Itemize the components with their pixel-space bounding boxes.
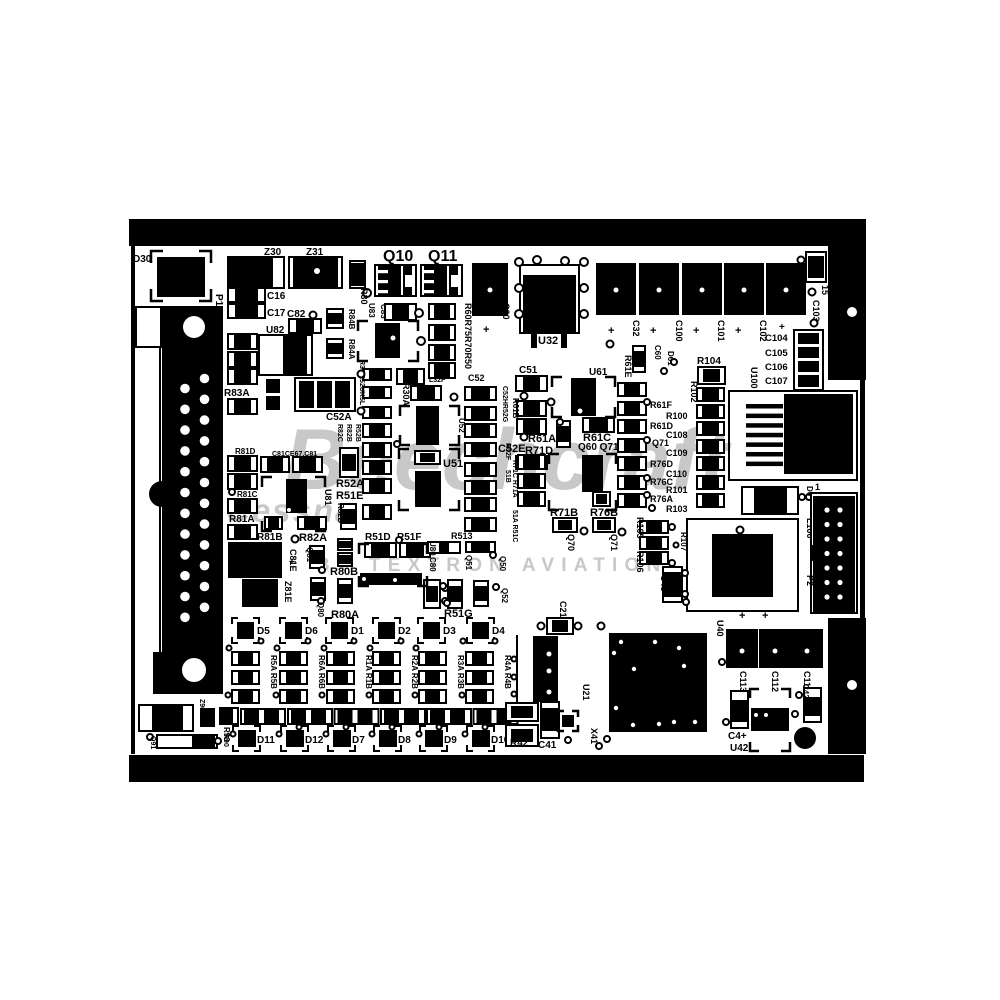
svg-text:R82A: R82A	[299, 532, 327, 544]
svg-text:R103: R103	[666, 504, 688, 514]
svg-text:Q50: Q50	[498, 556, 507, 572]
svg-text:U61: U61	[589, 367, 608, 378]
svg-text:R105: R105	[635, 517, 645, 539]
svg-text:R81D: R81D	[235, 447, 256, 456]
svg-text:R83A: R83A	[224, 388, 250, 399]
svg-text:+: +	[650, 325, 656, 337]
svg-text:R52A: R52A	[336, 478, 364, 490]
svg-text:C4+: C4+	[728, 731, 747, 742]
svg-text:R80A: R80A	[331, 609, 359, 621]
svg-text:51A R51C: 51A R51C	[511, 510, 518, 542]
svg-text:R80B: R80B	[330, 566, 358, 578]
svg-text:R81B: R81B	[257, 532, 283, 543]
svg-text:Q80: Q80	[316, 602, 325, 618]
svg-text:D2: D2	[398, 626, 411, 637]
svg-text:C80: C80	[428, 557, 437, 572]
svg-text:R84A: R84A	[347, 339, 356, 360]
svg-text:15: 15	[820, 285, 830, 295]
svg-text:U42: U42	[730, 743, 749, 754]
svg-text:+: +	[289, 557, 295, 568]
svg-text:+: +	[693, 325, 699, 337]
svg-text:U82: U82	[266, 325, 285, 336]
svg-text:C52E: C52E	[498, 443, 526, 455]
svg-text:Q10: Q10	[383, 248, 413, 265]
svg-text:R81A: R81A	[229, 514, 255, 525]
svg-text:C106: C106	[765, 362, 788, 373]
svg-text:Q60 Q71: Q60 Q71	[578, 442, 619, 453]
svg-text:Q51: Q51	[464, 555, 473, 571]
svg-text:X41: X41	[589, 728, 599, 744]
svg-text:R1A R1B: R1A R1B	[364, 655, 373, 689]
svg-text:+: +	[735, 325, 741, 337]
svg-text:Z31: Z31	[306, 247, 324, 258]
svg-text:D6: D6	[305, 626, 318, 637]
svg-text:+: +	[739, 610, 745, 622]
svg-text:Z81E: Z81E	[283, 581, 293, 603]
svg-text:R3A R3B: R3A R3B	[456, 655, 465, 689]
svg-text:C52A: C52A	[326, 412, 352, 423]
svg-text:D3: D3	[443, 626, 456, 637]
svg-text:C32: C32	[631, 320, 641, 337]
svg-text:R61F: R61F	[650, 400, 673, 410]
svg-text:R104: R104	[697, 356, 721, 367]
svg-text:C113: C113	[738, 671, 748, 692]
svg-text:C82: C82	[287, 309, 306, 320]
svg-text:Z30: Z30	[264, 247, 282, 258]
svg-text:Q70: Q70	[566, 534, 576, 551]
svg-text:C107: C107	[765, 376, 788, 387]
svg-text:U51: U51	[443, 458, 463, 470]
svg-text:C17: C17	[267, 308, 286, 319]
svg-text:U100: U100	[749, 367, 759, 389]
svg-text:D4: D4	[492, 626, 505, 637]
svg-text:1: 1	[815, 482, 820, 492]
svg-text:D5: D5	[257, 626, 270, 637]
svg-text:R82C: R82C	[336, 424, 343, 442]
svg-text:R61E: R61E	[623, 355, 633, 378]
svg-text:C109: C109	[666, 448, 688, 458]
svg-text:Q71: Q71	[652, 438, 669, 448]
svg-text:R106: R106	[635, 551, 645, 573]
svg-text:D1: D1	[351, 626, 364, 637]
svg-text:Q71: Q71	[609, 534, 619, 551]
svg-text:Q81: Q81	[305, 547, 314, 563]
svg-text:C30: C30	[501, 303, 511, 320]
svg-text:U80: U80	[428, 541, 437, 556]
svg-text:C105: C105	[765, 348, 788, 359]
svg-text:R51D: R51D	[365, 532, 391, 543]
svg-text:R6A R6B: R6A R6B	[317, 655, 326, 689]
svg-text:D8: D8	[398, 735, 411, 746]
svg-text:R52B: R52B	[354, 424, 361, 442]
svg-text:R2A R2B: R2A R2B	[410, 655, 419, 689]
svg-text:D12: D12	[305, 735, 324, 746]
svg-text:L32F: L32F	[429, 377, 446, 384]
svg-text:R76D: R76D	[650, 459, 674, 469]
svg-text:U81: U81	[323, 489, 333, 506]
svg-text:R84B: R84B	[347, 309, 356, 330]
svg-text:R82D: R82D	[336, 503, 345, 524]
svg-text:C103: C103	[811, 300, 821, 322]
svg-text:R4A R4B: R4A R4B	[503, 655, 512, 689]
svg-text:D11: D11	[257, 735, 275, 746]
svg-text:51B: 51B	[504, 470, 511, 483]
svg-text:R30A: R30A	[401, 383, 411, 407]
svg-text:+: +	[483, 324, 489, 336]
svg-text:Z90: Z90	[198, 699, 205, 711]
svg-text:U83: U83	[367, 303, 376, 318]
svg-text:C52HR52G: C52HR52G	[501, 386, 508, 423]
svg-text:D9: D9	[444, 735, 457, 746]
svg-text:D7: D7	[352, 735, 365, 746]
svg-text:R90: R90	[222, 734, 229, 747]
svg-text:P1: P1	[213, 294, 224, 307]
svg-text:D30: D30	[133, 254, 152, 265]
svg-text:C52: C52	[468, 373, 485, 383]
svg-text:C51: C51	[519, 365, 538, 376]
svg-text:R100: R100	[666, 411, 688, 421]
svg-text:R51E: R51E	[336, 490, 364, 502]
svg-text:+: +	[762, 610, 768, 622]
svg-text:P2: P2	[805, 575, 815, 586]
svg-text:C21: C21	[558, 601, 568, 618]
svg-text:R5A R5B: R5A R5B	[269, 655, 278, 689]
svg-text:C43: C43	[659, 575, 669, 592]
svg-text:R3BR52UK5L: R3BR52UK5L	[358, 360, 365, 406]
svg-text:C101: C101	[716, 320, 726, 342]
svg-text:C41: C41	[538, 740, 557, 751]
svg-text:R61A: R61A	[528, 433, 556, 445]
svg-text:R513: R513	[451, 531, 473, 541]
svg-text:+: +	[608, 325, 614, 337]
svg-text:R61B: R61B	[511, 398, 520, 419]
svg-text:C108: C108	[666, 430, 688, 440]
svg-text:R76A: R76A	[650, 494, 674, 504]
svg-text:C16: C16	[267, 291, 286, 302]
svg-text:Q91: Q91	[149, 736, 156, 749]
svg-text:C100: C100	[674, 320, 684, 342]
svg-text:R102: R102	[689, 381, 699, 403]
svg-text:R107: R107	[679, 532, 688, 552]
svg-text:C104: C104	[765, 333, 788, 344]
svg-text:Q11: Q11	[428, 248, 457, 265]
svg-text:Q52: Q52	[500, 588, 509, 604]
svg-text:C60: C60	[653, 345, 662, 360]
svg-text:+: +	[779, 322, 785, 333]
svg-text:U40: U40	[715, 620, 725, 637]
svg-text:U21: U21	[581, 684, 591, 701]
svg-text:R81C: R81C	[237, 490, 258, 499]
svg-text:R82B: R82B	[345, 424, 352, 442]
svg-text:R60R75R70R50: R60R75R70R50	[463, 303, 473, 369]
svg-text:C112: C112	[770, 671, 780, 692]
svg-text:C42: C42	[801, 684, 810, 699]
svg-text:U32: U32	[538, 335, 558, 347]
svg-text:R42: R42	[510, 738, 529, 749]
